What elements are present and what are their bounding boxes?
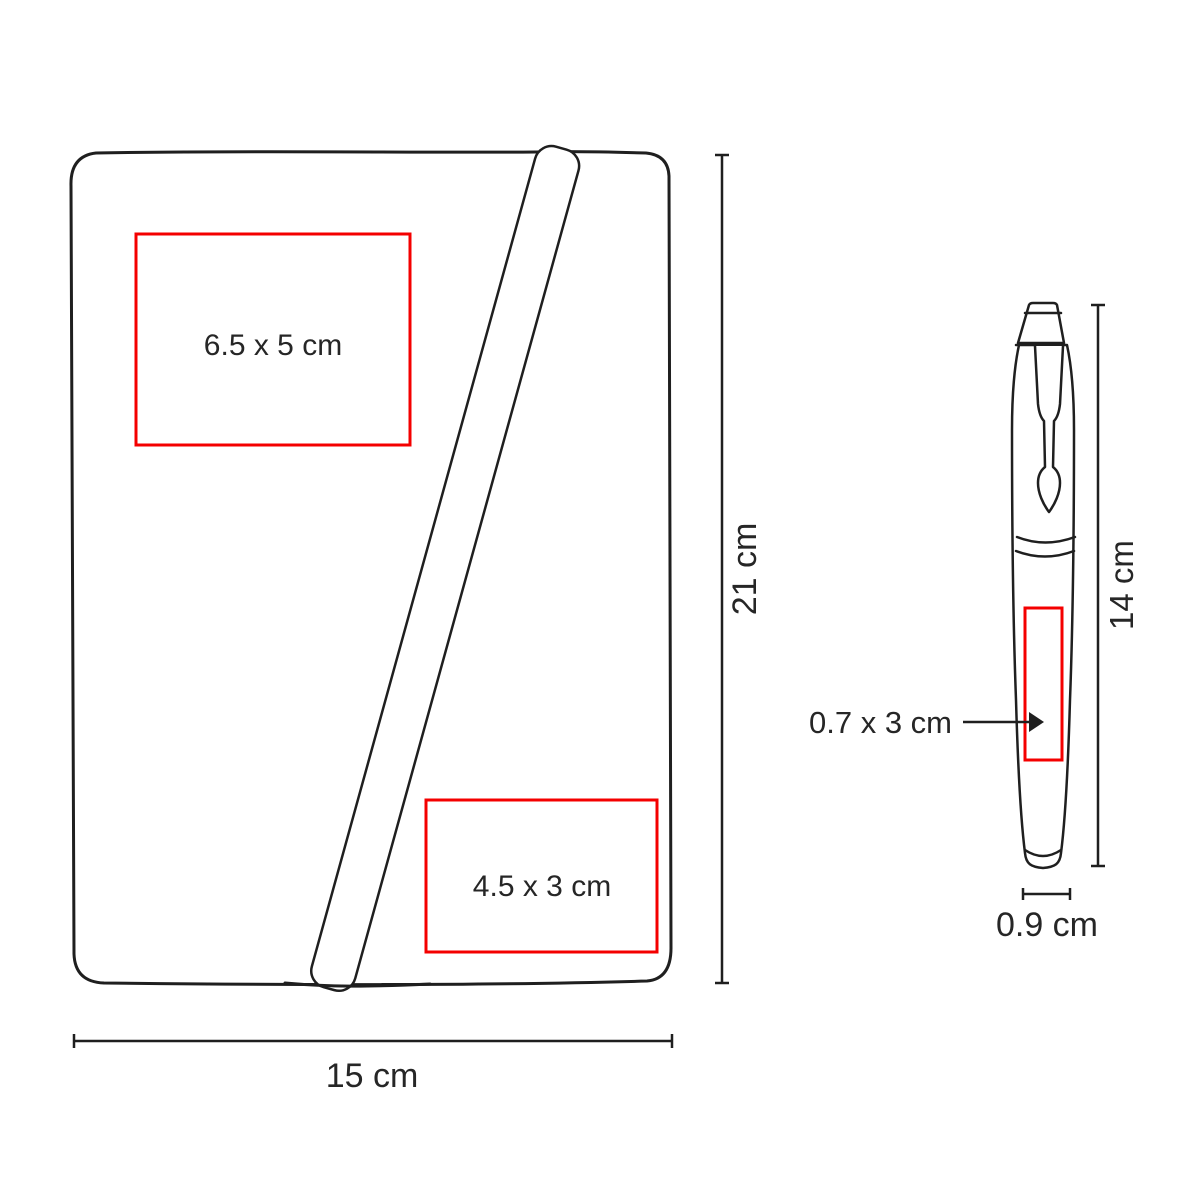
pen-imprint-arrow bbox=[963, 712, 1044, 732]
pen-width-label: 0.9 cm bbox=[996, 906, 1098, 944]
notebook-height-label: 21 cm bbox=[726, 523, 764, 616]
notebook-width-label: 15 cm bbox=[326, 1057, 419, 1095]
product-dimension-diagram: 6.5 x 5 cm 4.5 x 3 cm 21 cm 15 cm bbox=[0, 0, 1200, 1200]
pen: 0.7 x 3 cm 14 cm 0.9 cm bbox=[809, 303, 1140, 944]
pen-width-dimension-line bbox=[1023, 888, 1070, 900]
notebook-width-dimension-line bbox=[74, 1034, 672, 1048]
notebook: 6.5 x 5 cm 4.5 x 3 cm 21 cm 15 cm bbox=[71, 142, 764, 1095]
pen-cap-top bbox=[1018, 303, 1064, 343]
diagram-svg: 6.5 x 5 cm 4.5 x 3 cm 21 cm 15 cm bbox=[0, 0, 1200, 1200]
pen-imprint-label: 0.7 x 3 cm bbox=[809, 705, 952, 740]
pen-height-label: 14 cm bbox=[1103, 540, 1140, 630]
imprint-area-notebook-bottom-label: 4.5 x 3 cm bbox=[473, 870, 611, 903]
imprint-area-notebook-top-label: 6.5 x 5 cm bbox=[204, 329, 342, 362]
